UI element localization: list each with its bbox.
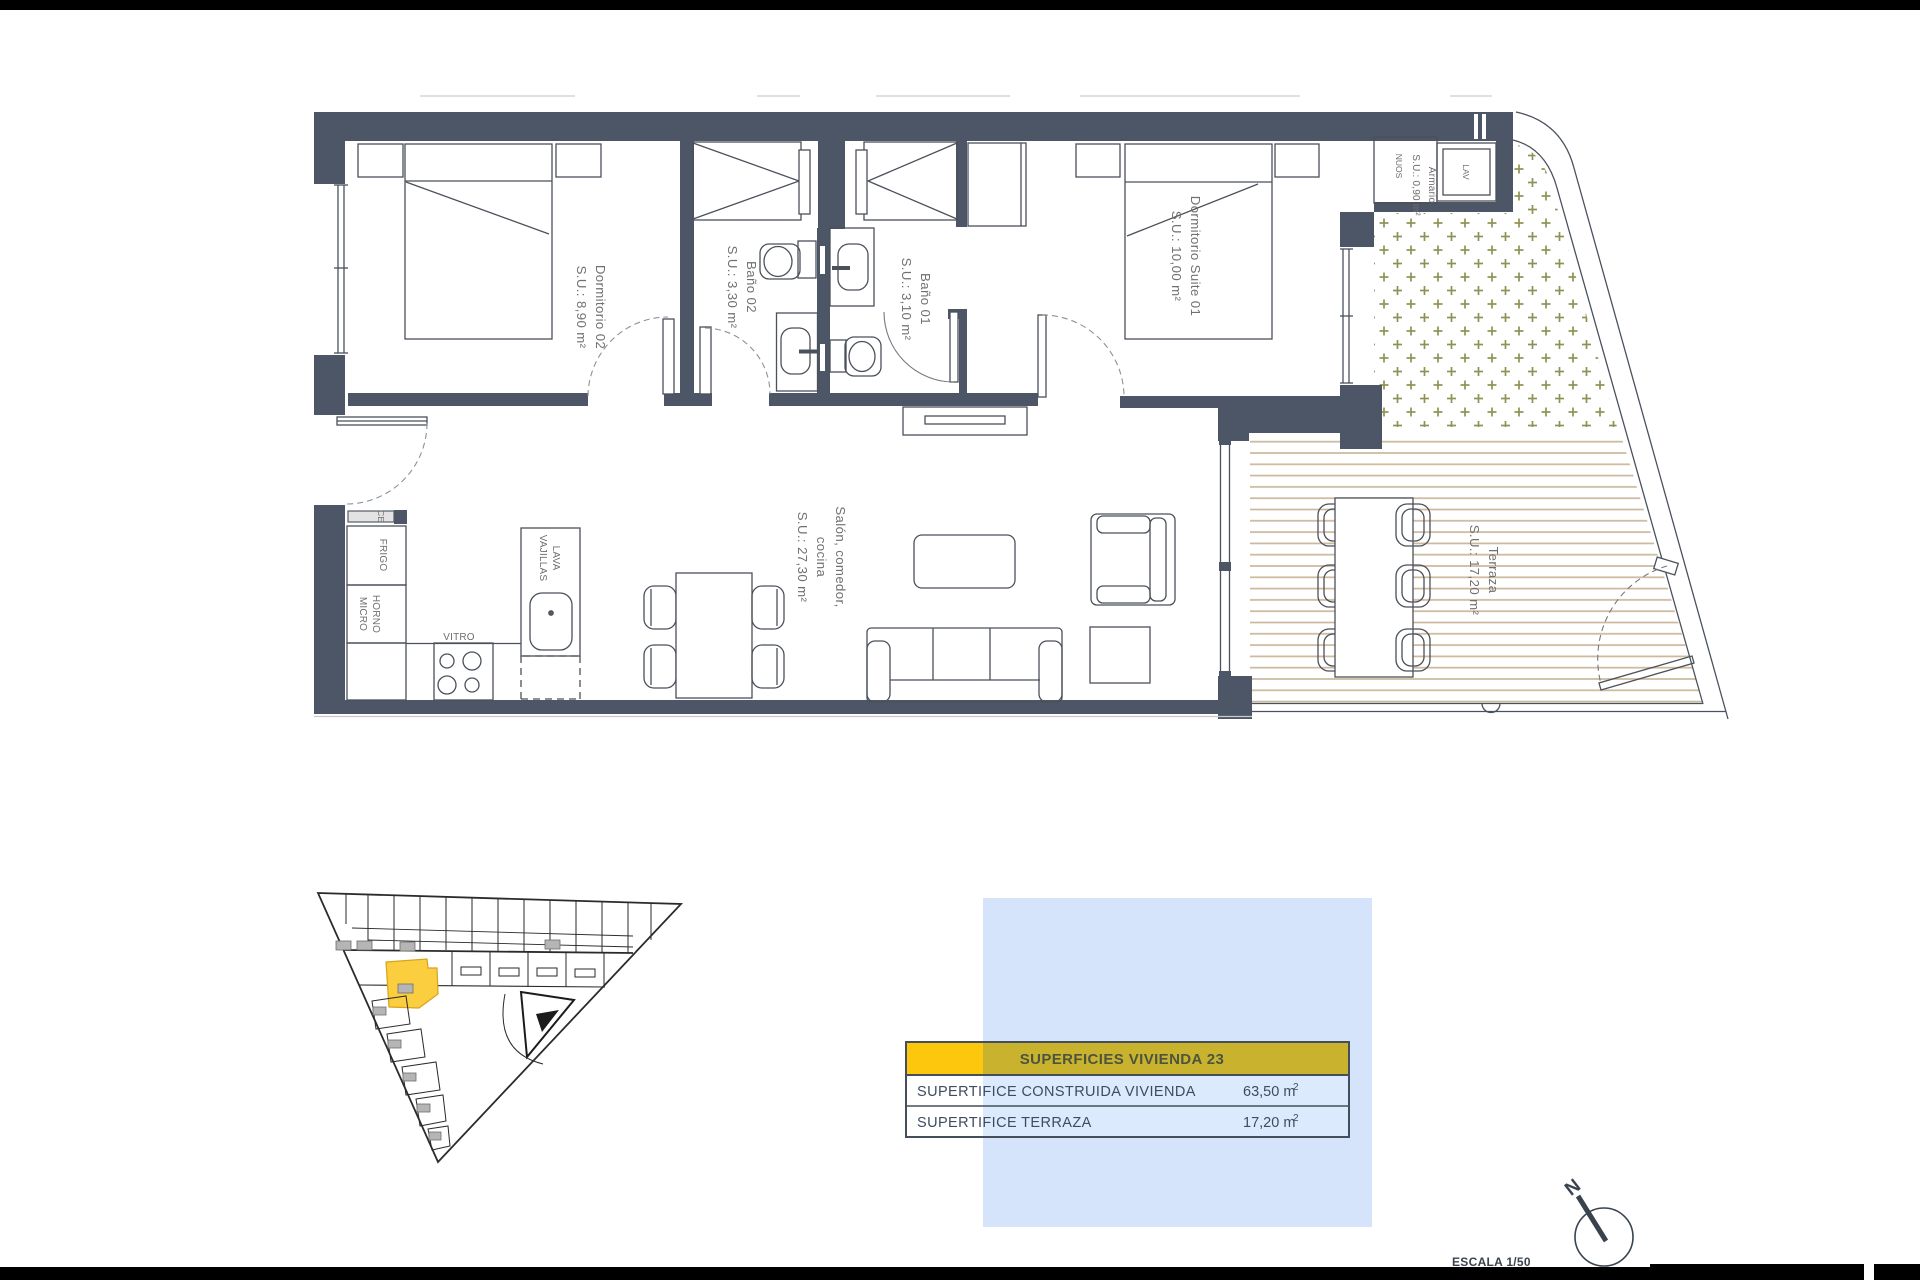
svg-text:Baño 02: Baño 02	[744, 261, 759, 313]
svg-text:2: 2	[1293, 1082, 1299, 1093]
svg-text:S.U.: 3,30 m²: S.U.: 3,30 m²	[725, 246, 740, 329]
svg-text:SUPERFICIES VIVIENDA 23: SUPERFICIES VIVIENDA 23	[1020, 1051, 1225, 1068]
svg-text:LAV: LAV	[1461, 164, 1471, 180]
svg-text:S.U.: 17,20 m²: S.U.: 17,20 m²	[1467, 525, 1482, 616]
svg-text:S.U.: 3,10 m²: S.U.: 3,10 m²	[899, 258, 914, 341]
svg-text:Salón, comedor,: Salón, comedor,	[833, 506, 848, 607]
svg-text:VITRO: VITRO	[443, 632, 475, 643]
svg-text:SUPERTIFICE CONSTRUIDA VIVIEND: SUPERTIFICE CONSTRUIDA VIVIENDA	[917, 1084, 1196, 1100]
svg-text:Terraza: Terraza	[1486, 547, 1501, 594]
svg-text:SUPERTIFICE TERRAZA: SUPERTIFICE TERRAZA	[917, 1115, 1092, 1131]
svg-text:Armario: Armario	[1426, 167, 1437, 204]
svg-text:S.U.: 27,30 m²: S.U.: 27,30 m²	[795, 512, 810, 603]
svg-text:Baño 01: Baño 01	[918, 273, 933, 325]
svg-text:S.U.: 0,90 m²: S.U.: 0,90 m²	[1410, 154, 1421, 216]
svg-text:FRIGO: FRIGO	[377, 539, 388, 572]
svg-text:S.U.: 8,90 m²: S.U.: 8,90 m²	[574, 266, 589, 349]
svg-text:cocina: cocina	[814, 537, 829, 578]
svg-text:2: 2	[1293, 1113, 1299, 1124]
svg-text:NUOS: NUOS	[1394, 154, 1404, 179]
svg-text:CE: CE	[376, 510, 386, 522]
svg-text:ESCALA 1/50: ESCALA 1/50	[1452, 1255, 1531, 1269]
svg-text:VAJILLAS: VAJILLAS	[537, 535, 548, 582]
svg-text:Dormitorio 02: Dormitorio 02	[593, 265, 608, 349]
svg-text:LAVA: LAVA	[550, 546, 561, 571]
svg-text:S.U.: 10,00 m²: S.U.: 10,00 m²	[1169, 211, 1184, 302]
svg-text:63,50 m: 63,50 m	[1243, 1084, 1295, 1100]
svg-text:HORNO: HORNO	[370, 595, 381, 633]
svg-text:17,20 m: 17,20 m	[1243, 1115, 1295, 1131]
svg-text:MICRO: MICRO	[357, 597, 368, 631]
svg-text:Dormitorio Suite 01: Dormitorio Suite 01	[1188, 196, 1203, 316]
